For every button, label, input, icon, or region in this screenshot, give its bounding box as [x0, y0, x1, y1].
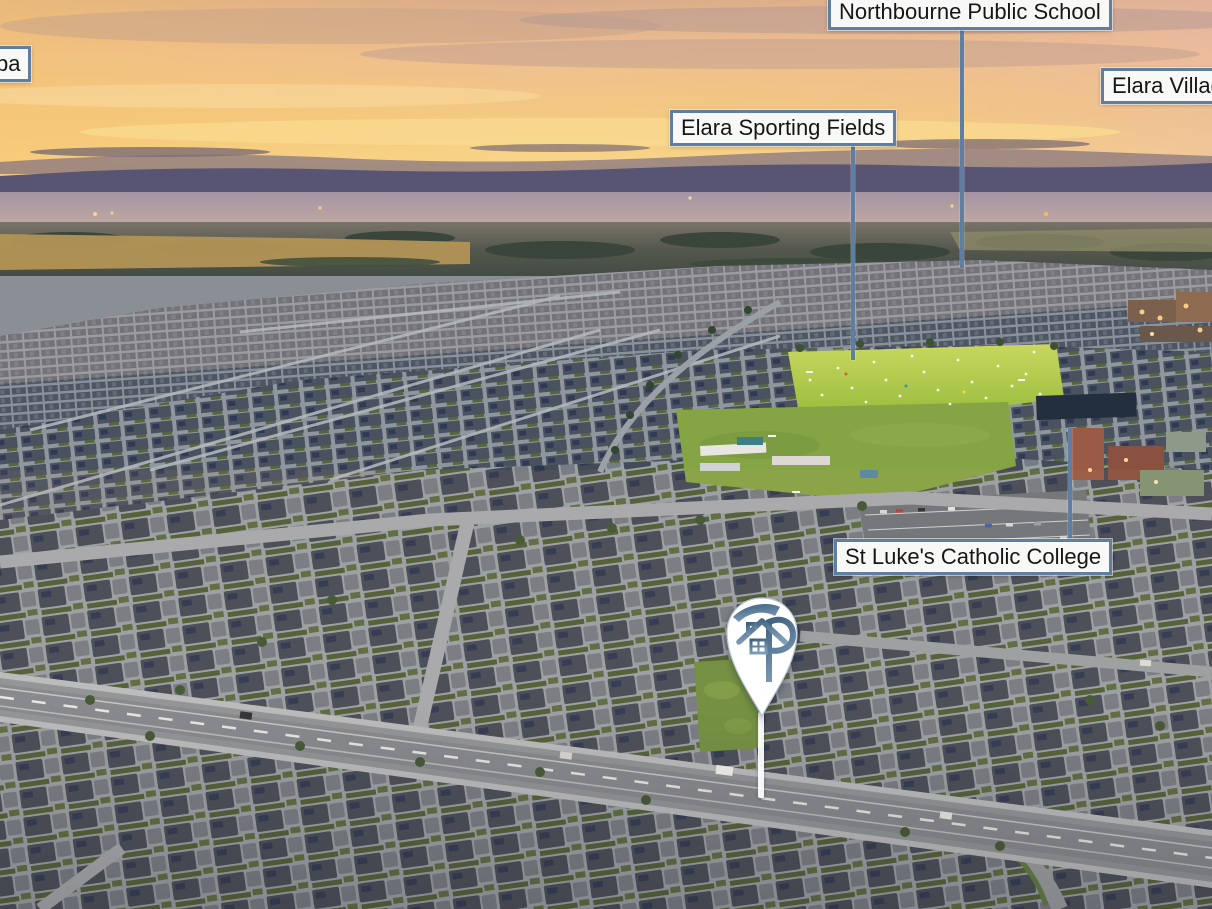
school-leader-line	[960, 15, 964, 268]
pin-pointer-line	[758, 712, 764, 798]
college-leader-line	[1068, 428, 1072, 541]
house-p-logo-icon	[722, 592, 802, 718]
label-elara-village: Elara Village	[1101, 68, 1212, 104]
property-location-pin	[722, 592, 802, 718]
aerial-photo-background	[0, 0, 1212, 909]
label-st-lukes-catholic-college: St Luke's Catholic College	[834, 539, 1112, 575]
label-partial-left: ba	[0, 46, 31, 82]
aerial-photo-scene: Northbourne Public School ba Elara Villa…	[0, 0, 1212, 909]
label-elara-sporting-fields: Elara Sporting Fields	[670, 110, 896, 146]
sporting-fields-leader-line	[851, 140, 855, 360]
label-northbourne-public-school: Northbourne Public School	[828, 0, 1112, 30]
